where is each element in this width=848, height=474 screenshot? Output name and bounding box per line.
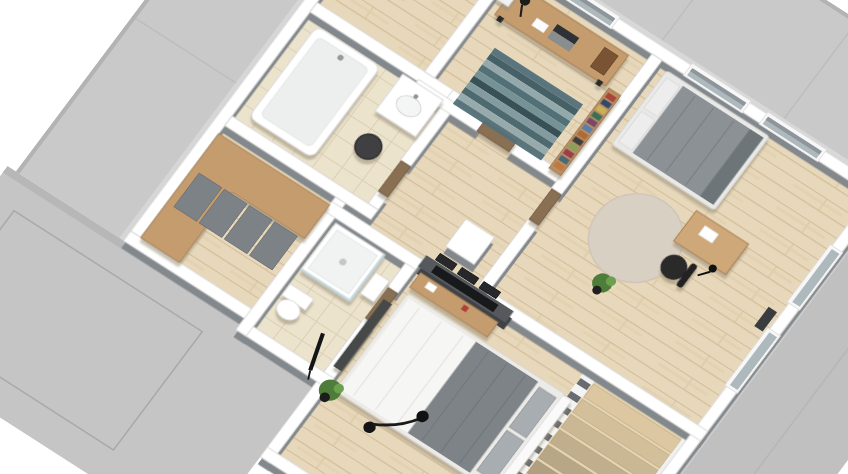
floorplan-render [0, 0, 848, 474]
floorplan-svg [0, 0, 848, 474]
axonometric-plan [0, 0, 848, 474]
